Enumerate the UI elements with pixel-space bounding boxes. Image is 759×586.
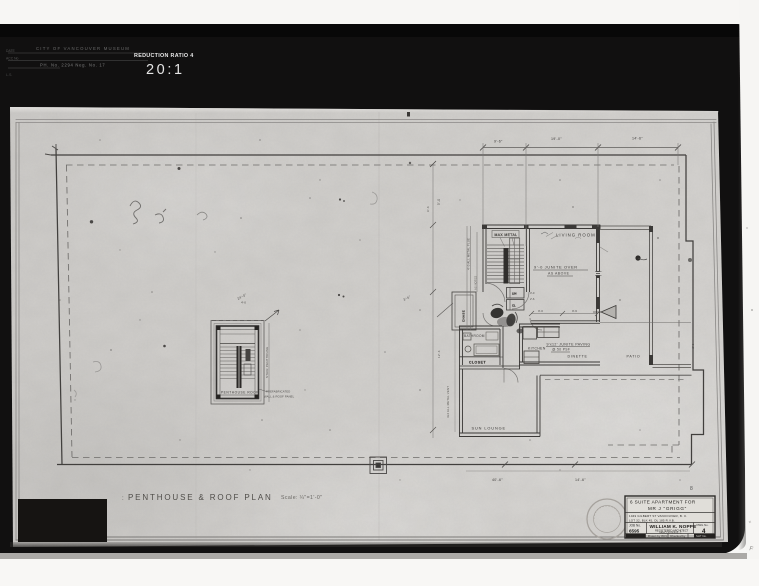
svg-text:LOT 32, BLK 45, DL 185 R.V.B.: LOT 32, BLK 45, DL 185 R.V.B. (629, 518, 675, 522)
svg-text:8: 8 (690, 486, 693, 492)
svg-text:L.S.: L.S. (6, 73, 12, 77)
svg-text:WILLIAM K. NOPPE: WILLIAM K. NOPPE (650, 524, 697, 529)
svg-text:9'-0: 9'-0 (538, 309, 543, 313)
svg-text:PENTHOUSE ROOF: PENTHOUSE ROOF (221, 391, 259, 395)
svg-text:9'-0 JUNITE OVER: 9'-0 JUNITE OVER (534, 265, 578, 270)
svg-text:SUN LOUNGE: SUN LOUNGE (472, 426, 507, 431)
svg-text:BATHROOM: BATHROOM (464, 334, 485, 338)
svg-text:5'-0: 5'-0 (437, 199, 441, 205)
svg-text:PREFABRICATED: PREFABRICATED (266, 390, 290, 394)
svg-text:9'-6: 9'-6 (426, 206, 430, 212)
svg-text:14'-6": 14'-6" (575, 478, 586, 482)
svg-text:CLOSET: CLOSET (469, 361, 486, 365)
svg-text:STAIR PENTHOUSE: STAIR PENTHOUSE (265, 346, 269, 378)
svg-text:9'x12' JUNITE PAVING: 9'x12' JUNITE PAVING (547, 343, 591, 347)
svg-text:LIVING ROOM: LIVING ROOM (556, 233, 596, 238)
svg-text:PH. No. 2294 Neg. No. 17: PH. No. 2294 Neg. No. 17 (40, 63, 105, 68)
svg-text:19'-0": 19'-0" (551, 137, 562, 141)
svg-text:14'-6": 14'-6" (632, 137, 643, 141)
svg-text:24'-0": 24'-0" (237, 292, 248, 301)
svg-text:WALL & ROOF PANEL: WALL & ROOF PANEL (264, 395, 295, 399)
svg-text:DINETTE: DINETTE (568, 355, 588, 359)
svg-text:3'-0: 3'-0 (530, 291, 535, 295)
svg-text:4'-0 ALL METAL FLUE: 4'-0 ALL METAL FLUE (467, 238, 471, 270)
svg-text:@ 50 PSF: @ 50 PSF (552, 348, 570, 352)
svg-text:9'-6": 9'-6" (494, 140, 503, 144)
svg-text:DATE: DATE (6, 49, 16, 53)
svg-text:CL: CL (512, 304, 516, 308)
svg-text:JOB No.: JOB No. (629, 524, 641, 528)
svg-text:CHASE: CHASE (462, 310, 466, 322)
svg-text:+: + (747, 519, 752, 526)
svg-text:LIN: LIN (512, 292, 516, 296)
svg-text:ACC No: ACC No (6, 57, 19, 61)
svg-text:AS ABOVE: AS ABOVE (548, 272, 570, 276)
svg-text:SHT No.: SHT No. (696, 534, 707, 538)
svg-text:MAX METAL: MAX METAL (495, 233, 518, 237)
svg-text:4'-0: 4'-0 (241, 301, 246, 305)
svg-text:Checked by: Checked by (670, 534, 686, 538)
svg-text:9'-6: 9'-6 (572, 309, 577, 313)
svg-text::: : (122, 496, 124, 502)
svg-text:6595: 6595 (629, 529, 640, 534)
svg-text:12'-6: 12'-6 (437, 350, 441, 358)
svg-text:PATIO: PATIO (627, 355, 641, 359)
svg-text:PENTHOUSE & ROOF PLAN: PENTHOUSE & ROOF PLAN (128, 493, 273, 502)
svg-text:2'-6: 2'-6 (530, 297, 535, 301)
svg-text:40'-6": 40'-6" (492, 478, 503, 482)
svg-text:4x4 ALL METAL VENT: 4x4 ALL METAL VENT (446, 386, 450, 418)
svg-text:DWG No.: DWG No. (697, 523, 709, 527)
svg-text:AS NOTED: AS NOTED (475, 276, 478, 290)
svg-text:CITY OF VANCOUVER MUSEUM: CITY OF VANCOUVER MUSEUM (36, 46, 130, 51)
svg-text:1049 GILBERT ST VANCOUVER,: 1049 GILBERT ST VANCOUVER, B. C. (629, 514, 687, 518)
svg-text:KITCHEN: KITCHEN (528, 347, 546, 351)
svg-text:REDUCTION RATIO 4: REDUCTION RATIO 4 (134, 53, 194, 59)
svg-text:6 SUITE APARTMENT FOR: 6 SUITE APARTMENT FOR (630, 500, 696, 505)
svg-text:20:1: 20:1 (146, 62, 185, 78)
svg-text:MR J "GRIGG": MR J "GRIGG" (648, 506, 687, 511)
svg-text:2'-6: 2'-6 (691, 343, 695, 348)
svg-text:Drawn by W.N.: Drawn by W.N. (648, 534, 668, 538)
svg-text:F: F (748, 546, 753, 553)
svg-text:3'-6": 3'-6" (403, 294, 412, 302)
svg-text:Scale: ¼"=1'-0": Scale: ¼"=1'-0" (281, 495, 322, 501)
